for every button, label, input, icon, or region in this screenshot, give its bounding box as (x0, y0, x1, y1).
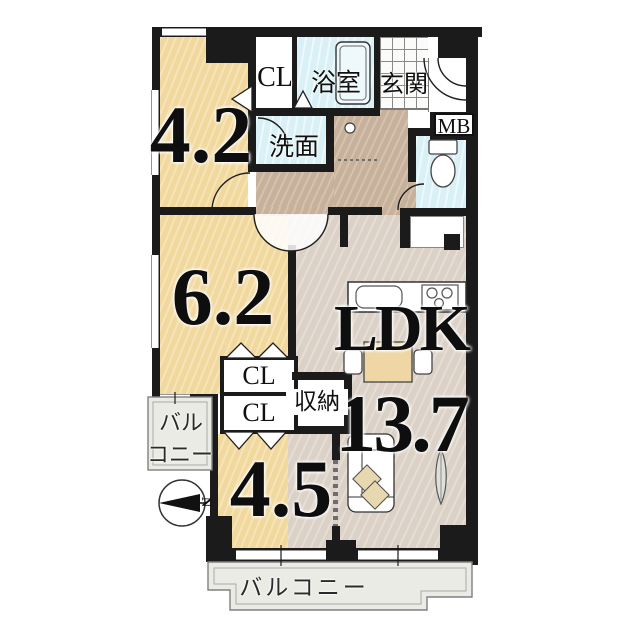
wall-toilet-west (408, 132, 416, 182)
compass-north-label: N (197, 493, 213, 511)
balcony-left-door (160, 394, 190, 402)
pillar-bottom-mid (326, 540, 356, 562)
closet-mid-1-label: CL (231, 361, 287, 391)
hallway-floor-b (256, 172, 334, 207)
entrance-step-line (380, 108, 428, 110)
mb-label: MB (434, 113, 474, 136)
wall-mid-a (152, 207, 256, 215)
window-left-6-2 (151, 255, 159, 348)
balcony-left-label-1: バル (155, 405, 207, 437)
floor-plan: 4.2 6.2 4.5 LDK 13.7 CL 浴室 玄関 MB 洗面 CL C… (0, 0, 640, 640)
wall-stub-fridge-west (400, 208, 410, 248)
wall-stub-fridge-se (444, 234, 460, 250)
wall-4-5-west (210, 394, 218, 552)
window-top (162, 28, 206, 36)
washroom-label: 洗面 (262, 127, 326, 163)
entry-door-nook (428, 58, 466, 112)
hallway-floor-a (334, 110, 408, 215)
pillar-4-2-corner (206, 27, 250, 63)
wall-mid-b (328, 207, 382, 215)
wall-stub-ldk-entry (340, 215, 348, 247)
closet-mid-2-label: CL (231, 398, 287, 428)
wall-bath-south (248, 108, 380, 116)
window-bottom-ldk (358, 550, 438, 560)
balcony-left-label-2: コニー (141, 437, 219, 469)
storage-label: 収納 (286, 389, 348, 415)
bathroom-label: 浴室 (300, 63, 372, 99)
ldk-size: 13.7 (329, 380, 473, 468)
wall-laundry-west (326, 112, 334, 172)
wall-6-2-ldk-div (288, 245, 296, 362)
pillar-bottom-right (440, 525, 478, 562)
room-4-5-size: 4.5 (219, 446, 343, 532)
balcony-bottom-label: バルコニー (226, 568, 382, 602)
room-6-2-size: 6.2 (161, 254, 285, 340)
compass-arrow (159, 494, 200, 512)
wall-wash-south (248, 164, 334, 172)
room-4-2-size: 4.2 (149, 92, 253, 178)
ldk-title: LDK (331, 294, 471, 364)
hallway-floor-c (408, 180, 416, 208)
window-bottom-4-5 (236, 550, 326, 560)
entrance-label: 玄関 (378, 64, 430, 99)
toilet-floor (416, 136, 466, 208)
closet-top-label: CL (254, 62, 296, 94)
